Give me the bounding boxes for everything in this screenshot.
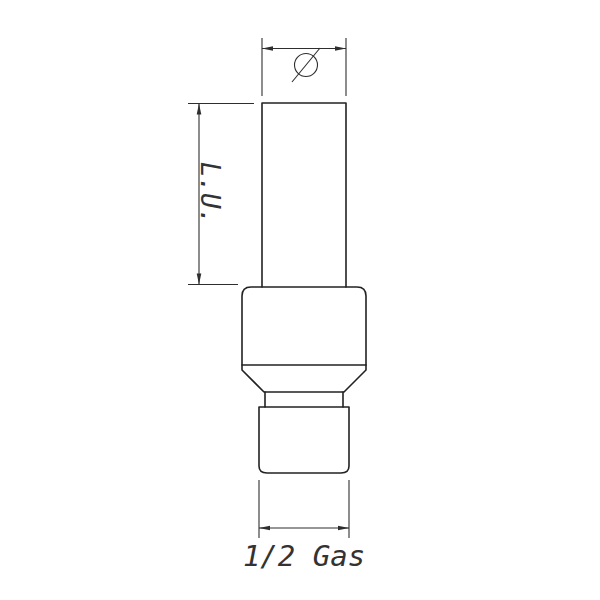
technical-drawing: L.U. 1/2 Gas <box>0 0 600 600</box>
length-arrow-bottom <box>197 274 202 285</box>
thread-label: 1/2 Gas <box>243 539 365 573</box>
tube-outline <box>262 103 346 287</box>
thread-dimension: 1/2 Gas <box>243 480 365 573</box>
length-label: L.U. <box>195 162 225 225</box>
diameter-arrow-left <box>262 46 273 51</box>
thread-arrow-right <box>338 526 349 531</box>
length-arrow-top <box>197 104 202 115</box>
neck-outline <box>265 392 343 407</box>
thread-outline <box>259 407 349 473</box>
part-outline <box>242 103 366 473</box>
diameter-arrow-right <box>335 46 346 51</box>
thread-arrow-left <box>259 526 270 531</box>
drawing-canvas: L.U. 1/2 Gas <box>0 0 600 600</box>
diameter-dimension <box>262 38 346 96</box>
hex-body-outline <box>242 287 366 392</box>
length-dimension: L.U. <box>188 104 254 285</box>
diameter-symbol <box>292 48 320 82</box>
